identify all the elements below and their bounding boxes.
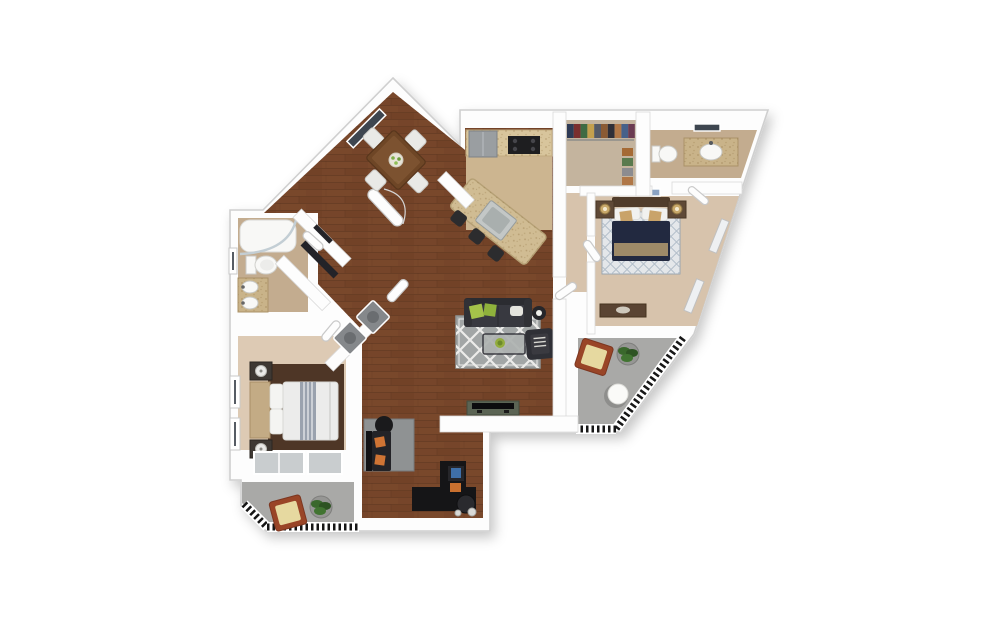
patio-left: [242, 482, 359, 532]
potted-plant: [617, 343, 639, 365]
bed-pillow: [270, 409, 283, 434]
faucet: [709, 141, 713, 145]
bedroom2-throw: [614, 243, 668, 256]
potted-plant: [310, 496, 332, 518]
accent-pillow: [619, 210, 632, 223]
living-room: [456, 298, 555, 368]
orange-pillow: [374, 454, 385, 465]
den-sofa: [366, 431, 391, 471]
toilet-bowl: [659, 146, 677, 162]
accent-pillow: [648, 210, 661, 223]
vanity-sink: [700, 144, 722, 160]
coffee-table: [483, 334, 525, 354]
centerpiece: [389, 153, 403, 167]
floor-plan-image: [0, 0, 998, 626]
bed-pillow: [270, 384, 283, 409]
white-pillow: [510, 306, 523, 316]
television: [472, 403, 514, 409]
floor-plan-svg: [0, 0, 998, 626]
master-headboard: [250, 382, 270, 438]
range-stove: [508, 136, 540, 154]
living-sofa: [464, 298, 532, 327]
armchair: [525, 328, 556, 360]
tv-wall: [440, 416, 578, 432]
hanging-clothes: [567, 124, 635, 140]
bedroom-2: [595, 189, 739, 326]
tv-console: [467, 401, 519, 415]
patio-round-table: [604, 384, 628, 408]
orange-pillow: [374, 436, 386, 448]
bathroom2-window: [694, 124, 720, 131]
side-table-lamp: [532, 306, 546, 320]
walk-in-closet: [566, 120, 636, 186]
green-pillow: [469, 304, 484, 319]
orange-box: [450, 483, 461, 492]
patio-right: [574, 338, 683, 429]
bathroom-2: [650, 124, 757, 178]
sliding-glass-door: [308, 452, 342, 474]
bedroom2-headboard: [612, 197, 670, 207]
bathroom-1: [229, 218, 308, 312]
green-pillow: [483, 303, 497, 317]
